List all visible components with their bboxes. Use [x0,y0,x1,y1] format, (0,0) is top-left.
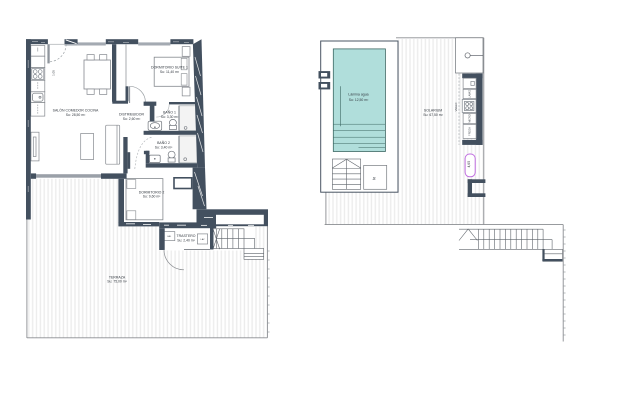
svg-text:LAV: LAV [201,238,206,241]
svg-text:VUELO: VUELO [454,103,458,112]
svg-text:BAÑO 2: BAÑO 2 [157,140,170,145]
svg-text:Su: 12,50 m²: Su: 12,50 m² [349,98,369,102]
svg-text:Su: 11,40 m²: Su: 11,40 m² [160,70,180,74]
svg-text:Su: 3,30 m²: Su: 3,30 m² [161,115,179,119]
svg-text:Su: 9,60 m²: Su: 9,60 m² [143,195,161,199]
svg-text:Lámina agua: Lámina agua [348,93,368,97]
svg-text:1.05: 1.05 [52,70,56,76]
svg-text:MICRO: MICRO [469,114,472,122]
svg-text:Su: 2,40 m²: Su: 2,40 m² [177,238,195,242]
svg-text:4,65: 4,65 [467,161,471,168]
svg-text:Su: 28,50 m²: Su: 28,50 m² [66,113,86,117]
svg-text:FREGA: FREGA [469,127,472,136]
svg-text:LAVAD: LAVAD [469,90,472,98]
svg-text:Su: 75,00 m²: Su: 75,00 m² [107,280,127,284]
svg-text:Su: 67,50 m²: Su: 67,50 m² [423,113,443,117]
svg-text:Su: 2,60 m²: Su: 2,60 m² [123,117,141,121]
svg-text:SALÓN COMEDOR COCINA: SALÓN COMEDOR COCINA [53,108,99,113]
svg-text:Su: 3,40 m²: Su: 3,40 m² [155,145,173,149]
svg-text:BAÑO 1: BAÑO 1 [163,110,176,115]
